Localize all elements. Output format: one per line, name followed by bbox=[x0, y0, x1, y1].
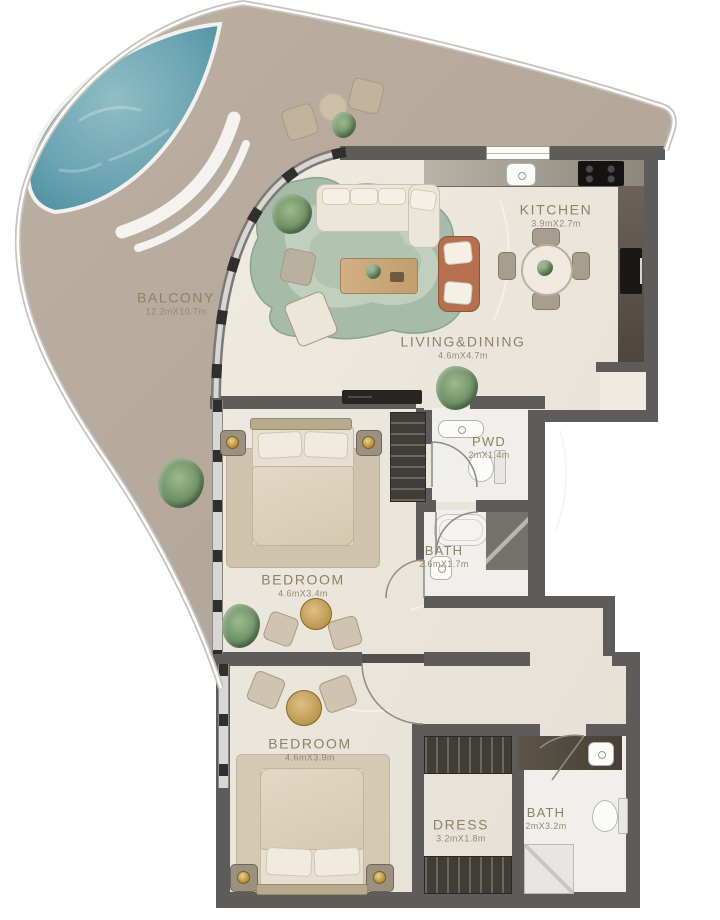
wall-bath1-bottom bbox=[424, 596, 545, 608]
bedroom2-lamp-left bbox=[237, 871, 250, 884]
bedroom1-lamp-right bbox=[362, 436, 375, 449]
bath2-sink bbox=[588, 742, 614, 766]
bath1-tub bbox=[434, 514, 488, 546]
bedroom1-pillow bbox=[257, 431, 302, 459]
wall-bedroom-divider-a bbox=[210, 652, 362, 666]
bedroom1-lamp-left bbox=[226, 436, 239, 449]
kitchen-sink bbox=[506, 163, 536, 186]
bath2-toilet-tank bbox=[618, 798, 628, 834]
bath1-shower bbox=[486, 512, 528, 570]
loveseat-pillow bbox=[443, 241, 473, 266]
sofa-cushion bbox=[378, 188, 406, 205]
pwd-toilet-tank bbox=[494, 450, 506, 484]
loveseat-pillow bbox=[443, 281, 473, 305]
wall-bath1-top-b bbox=[476, 500, 545, 512]
wall-bedroom-divider-b bbox=[424, 652, 530, 666]
bedroom2-lamp-right bbox=[373, 871, 386, 884]
wall-outer-step-h bbox=[545, 596, 615, 608]
bedroom1-duvet bbox=[252, 466, 354, 546]
dining-chair-west bbox=[498, 252, 516, 280]
dining-chair-east bbox=[572, 252, 590, 280]
window-wall-bedroom2 bbox=[218, 664, 229, 788]
kitchen-window bbox=[486, 146, 550, 160]
bedroom1-side-table bbox=[300, 598, 332, 630]
table-tray bbox=[390, 272, 404, 282]
wall-living-hall bbox=[470, 396, 545, 409]
tv-console bbox=[342, 390, 422, 404]
sofa-cushion bbox=[322, 188, 350, 205]
bath2-toilet bbox=[592, 800, 618, 832]
bedroom2-headboard bbox=[256, 884, 368, 895]
floor-plan: BALCONY 12.2mX10.7m KITCHEN 3.9mX2.7m LI… bbox=[0, 0, 720, 920]
wall-dress-top bbox=[412, 724, 512, 736]
bedroom2-door-leaf bbox=[362, 654, 424, 663]
wall-niche-bottom bbox=[528, 410, 658, 422]
sofa-cushion bbox=[350, 188, 378, 205]
wall-bedroom2-dress bbox=[412, 724, 424, 908]
kitchen-appliance bbox=[620, 248, 642, 294]
bedroom1-wardrobe bbox=[390, 412, 426, 502]
bedroom2-pillow bbox=[265, 847, 312, 877]
bedroom1-pillow bbox=[303, 431, 348, 459]
wall-bath2-top-a bbox=[512, 724, 540, 736]
entry-niche bbox=[600, 372, 646, 410]
wall-bath2-top-b bbox=[586, 724, 640, 736]
dress-wardrobe-top bbox=[424, 736, 512, 774]
bedroom1-headboard bbox=[250, 418, 352, 430]
appliance-handle bbox=[640, 258, 642, 284]
bath1-sink bbox=[430, 556, 452, 580]
pwd-sink bbox=[438, 420, 484, 438]
bath2-shower bbox=[524, 844, 574, 894]
sofa-cushion bbox=[409, 188, 438, 211]
bedroom2-duvet bbox=[260, 768, 364, 850]
pwd-toilet bbox=[468, 452, 494, 482]
bedroom2-pillow bbox=[313, 847, 360, 877]
wall-outer-step-v bbox=[603, 608, 615, 656]
kitchen-cooktop bbox=[578, 161, 624, 186]
bedroom2-table bbox=[286, 690, 322, 726]
wall-right-kitchen bbox=[644, 146, 658, 362]
wall-right-bottom bbox=[626, 660, 640, 908]
dress-wardrobe-bottom bbox=[424, 856, 512, 894]
